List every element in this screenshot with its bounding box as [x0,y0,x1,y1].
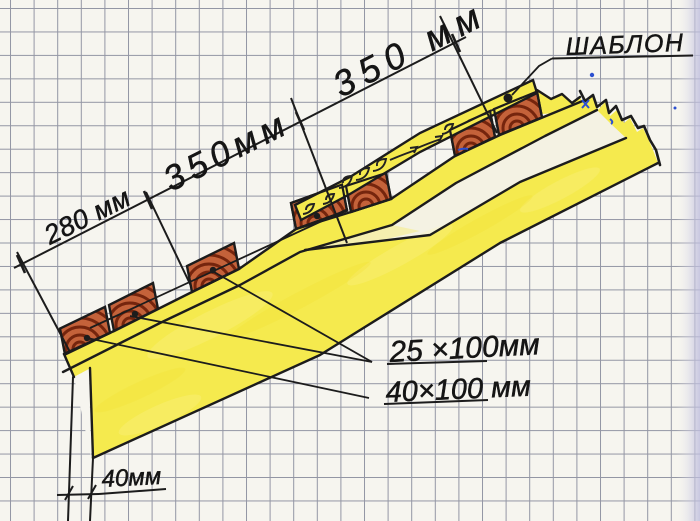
svg-text:40мм: 40мм [101,463,162,493]
